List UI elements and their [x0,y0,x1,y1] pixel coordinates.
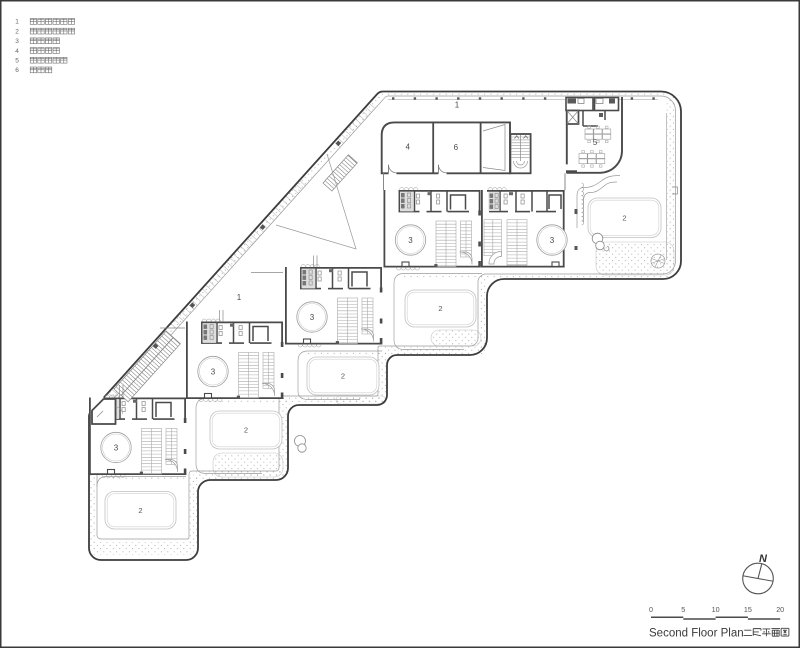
svg-text:5: 5 [681,605,685,614]
svg-text:3: 3 [211,367,216,376]
svg-text:5: 5 [593,138,598,147]
svg-text:2: 2 [15,28,19,35]
svg-text:2: 2 [138,506,142,515]
svg-text:15: 15 [744,605,752,614]
svg-text:2: 2 [438,304,442,313]
svg-text:3: 3 [114,443,119,452]
svg-text:20: 20 [776,605,784,614]
svg-text:2: 2 [244,426,248,435]
svg-text:1: 1 [455,101,460,110]
svg-text:3: 3 [408,236,413,245]
svg-text:4: 4 [15,48,19,55]
svg-text:Second Floor Plan: Second Floor Plan [649,628,744,640]
svg-text:0: 0 [649,605,653,614]
svg-text:3: 3 [310,313,315,322]
svg-text:1: 1 [15,19,19,26]
svg-text:5: 5 [15,58,19,65]
svg-text:3: 3 [550,236,555,245]
svg-text:2: 2 [341,372,345,381]
svg-text:2: 2 [622,213,626,222]
svg-text:N: N [759,553,768,565]
svg-text:1: 1 [237,293,242,302]
svg-text:3: 3 [15,38,19,45]
svg-text:6: 6 [454,143,459,152]
svg-text:10: 10 [712,605,720,614]
svg-text:6: 6 [15,67,19,74]
svg-text:4: 4 [405,142,410,151]
